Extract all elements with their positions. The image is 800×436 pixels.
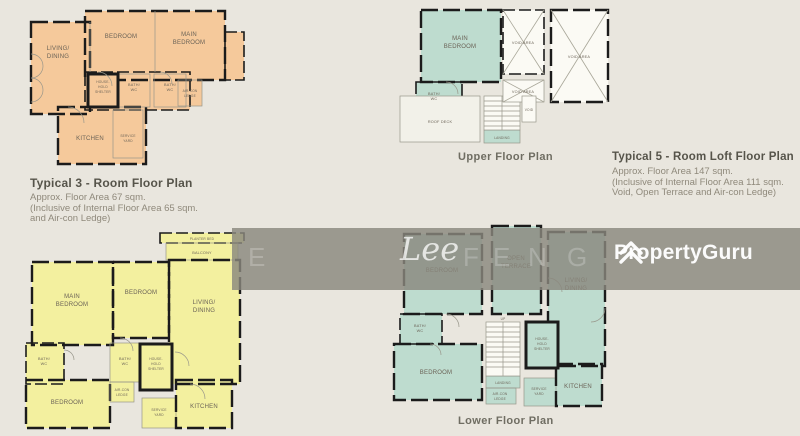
typical3-floor-plan: LIVING/ DINING BEDROOM MAIN BEDROOM HOUS… [28,2,263,172]
room-label-aircon-ledge: AIR-CON [493,392,508,396]
room-label-service-yard: YARD [123,139,133,143]
room-label-void-area: VOID AREA [568,55,591,59]
watermark-letter: N [528,242,547,273]
room-label-household-shelter: HOUSE- [535,337,549,341]
room-label-aircon-ledge: AIR-CON [183,89,198,93]
room-label-up: UP [501,317,506,321]
room-label-living: LIVING/ [193,300,216,306]
room-label-household-shelter: HOLD [98,85,108,89]
room-label-main-bedroom: BEDROOM [444,44,476,50]
room-label-kitchen: KITCHEN [76,136,104,142]
room-label-bath: BATH/ [38,357,51,361]
typical3-title: Typical 3 - Room Floor Plan [30,176,270,190]
room-label-bedroom: BEDROOM [105,34,137,40]
room-label-void: VOID [525,108,534,112]
room-label-service-yard: YARD [154,413,164,417]
room-label-bedroom: BEDROOM [51,400,83,406]
typical5-title: Typical 5 - Room Loft Floor Plan [612,150,800,164]
room-label-aircon-ledge: AIR-CON [115,388,130,392]
room-label-household-shelter: HOUSE- [96,80,110,84]
room-label-aircon-ledge: LEDGE [116,393,128,397]
room-label-bath: WC [41,362,48,366]
room-label-main-bedroom: BEDROOM [56,302,88,308]
room-label-service-yard: SERVICE [151,408,166,412]
room-label-household-shelter: HOLD [151,362,161,366]
watermark-letter: E [248,242,265,273]
room-label-kitchen: KITCHEN [190,404,218,410]
room-label-bath: WC [431,97,438,101]
room-label-household-shelter: SHELTER [148,367,164,371]
room-label-bath: WC [417,329,424,333]
room-label-service-yard: YARD [534,392,544,396]
room-label-bath: WC [131,88,138,92]
room-label-household-shelter: SHELTER [95,90,111,94]
room-label-service-yard: SERVICE [531,387,546,391]
room-label-bath: BATH/ [164,83,177,87]
propertyguru-watermark: PropertyGuru [614,241,753,265]
room-label-bath: WC [122,362,129,366]
room-label-aircon-ledge: LEDGE [184,94,196,98]
watermark-letter: F [463,242,479,273]
room-label-living: DINING [193,308,215,314]
watermark-letter: E [493,242,510,273]
upper-floor-plan: MAIN BEDROOM BATH/ WC VOID AREA VOID ARE… [396,2,610,146]
typical3-area: Approx. Floor Area 67 sqm. [30,193,270,204]
room-label-bath: WC [167,88,174,92]
room-label-void-area: VOID AREA [512,41,535,45]
room-label-household-shelter: HOUSE- [149,357,163,361]
watermark-script: Lee [400,230,459,268]
lower-floor-plan-title: Lower Floor Plan [458,415,554,427]
room-label-household-shelter: SHELTER [534,347,550,351]
room-label-bath: BATH/ [414,324,427,328]
room-label-living: DINING [47,54,69,60]
room-label-main-bedroom: MAIN [452,36,468,42]
room-label-main-bedroom: MAIN [181,32,197,38]
room-label-living: LIVING/ [47,46,70,52]
room-label-landing: LANDING [494,136,510,140]
room-label-kitchen: KITCHEN [564,384,592,390]
room-label-bedroom: BEDROOM [125,290,157,296]
floorplan-image: LIVING/ DINING BEDROOM MAIN BEDROOM HOUS… [0,0,800,436]
typical5-caption: Typical 5 - Room Loft Floor Plan Approx.… [612,150,800,199]
room-label-roof-deck: ROOF DECK [428,120,453,124]
typical3-area-detail2: and Air-con Ledge) [30,214,270,225]
room-label-main-bedroom: BEDROOM [173,40,205,46]
room-label-service-yard: SERVICE [120,134,135,138]
four-room-floor-plan: PLANTER BED BALCONY MAIN BEDROOM BEDROOM… [20,232,248,434]
watermark-band: E F E N G Lee PropertyGuru [232,228,800,290]
typical5-area: Approx. Floor Area 147 sqm. [612,167,800,178]
room-label-bedroom: BEDROOM [420,370,452,376]
room-label-bath: BATH/ [428,92,441,96]
room-label-aircon-ledge: LEDGE [494,397,506,401]
room-label-planter-bed: PLANTER BED [190,237,215,241]
typical3-caption: Typical 3 - Room Floor Plan Approx. Floo… [30,176,270,225]
room-label-landing: LANDING [495,381,511,385]
room-label-void-area: VOID AREA [512,90,535,94]
watermark-letter: G [567,242,587,273]
room-label-bath: BATH/ [128,83,141,87]
upper-floor-plan-title: Upper Floor Plan [458,151,553,163]
room-label-main-bedroom: MAIN [64,294,80,300]
room-label-household-shelter: HOLD [537,342,547,346]
room-label-balcony: BALCONY [192,251,212,255]
propertyguru-logo-icon [614,236,648,270]
typical5-area-detail2: Void, Open Terrace and Air-con Ledge) [612,188,800,199]
room-label-bath: BATH/ [119,357,132,361]
